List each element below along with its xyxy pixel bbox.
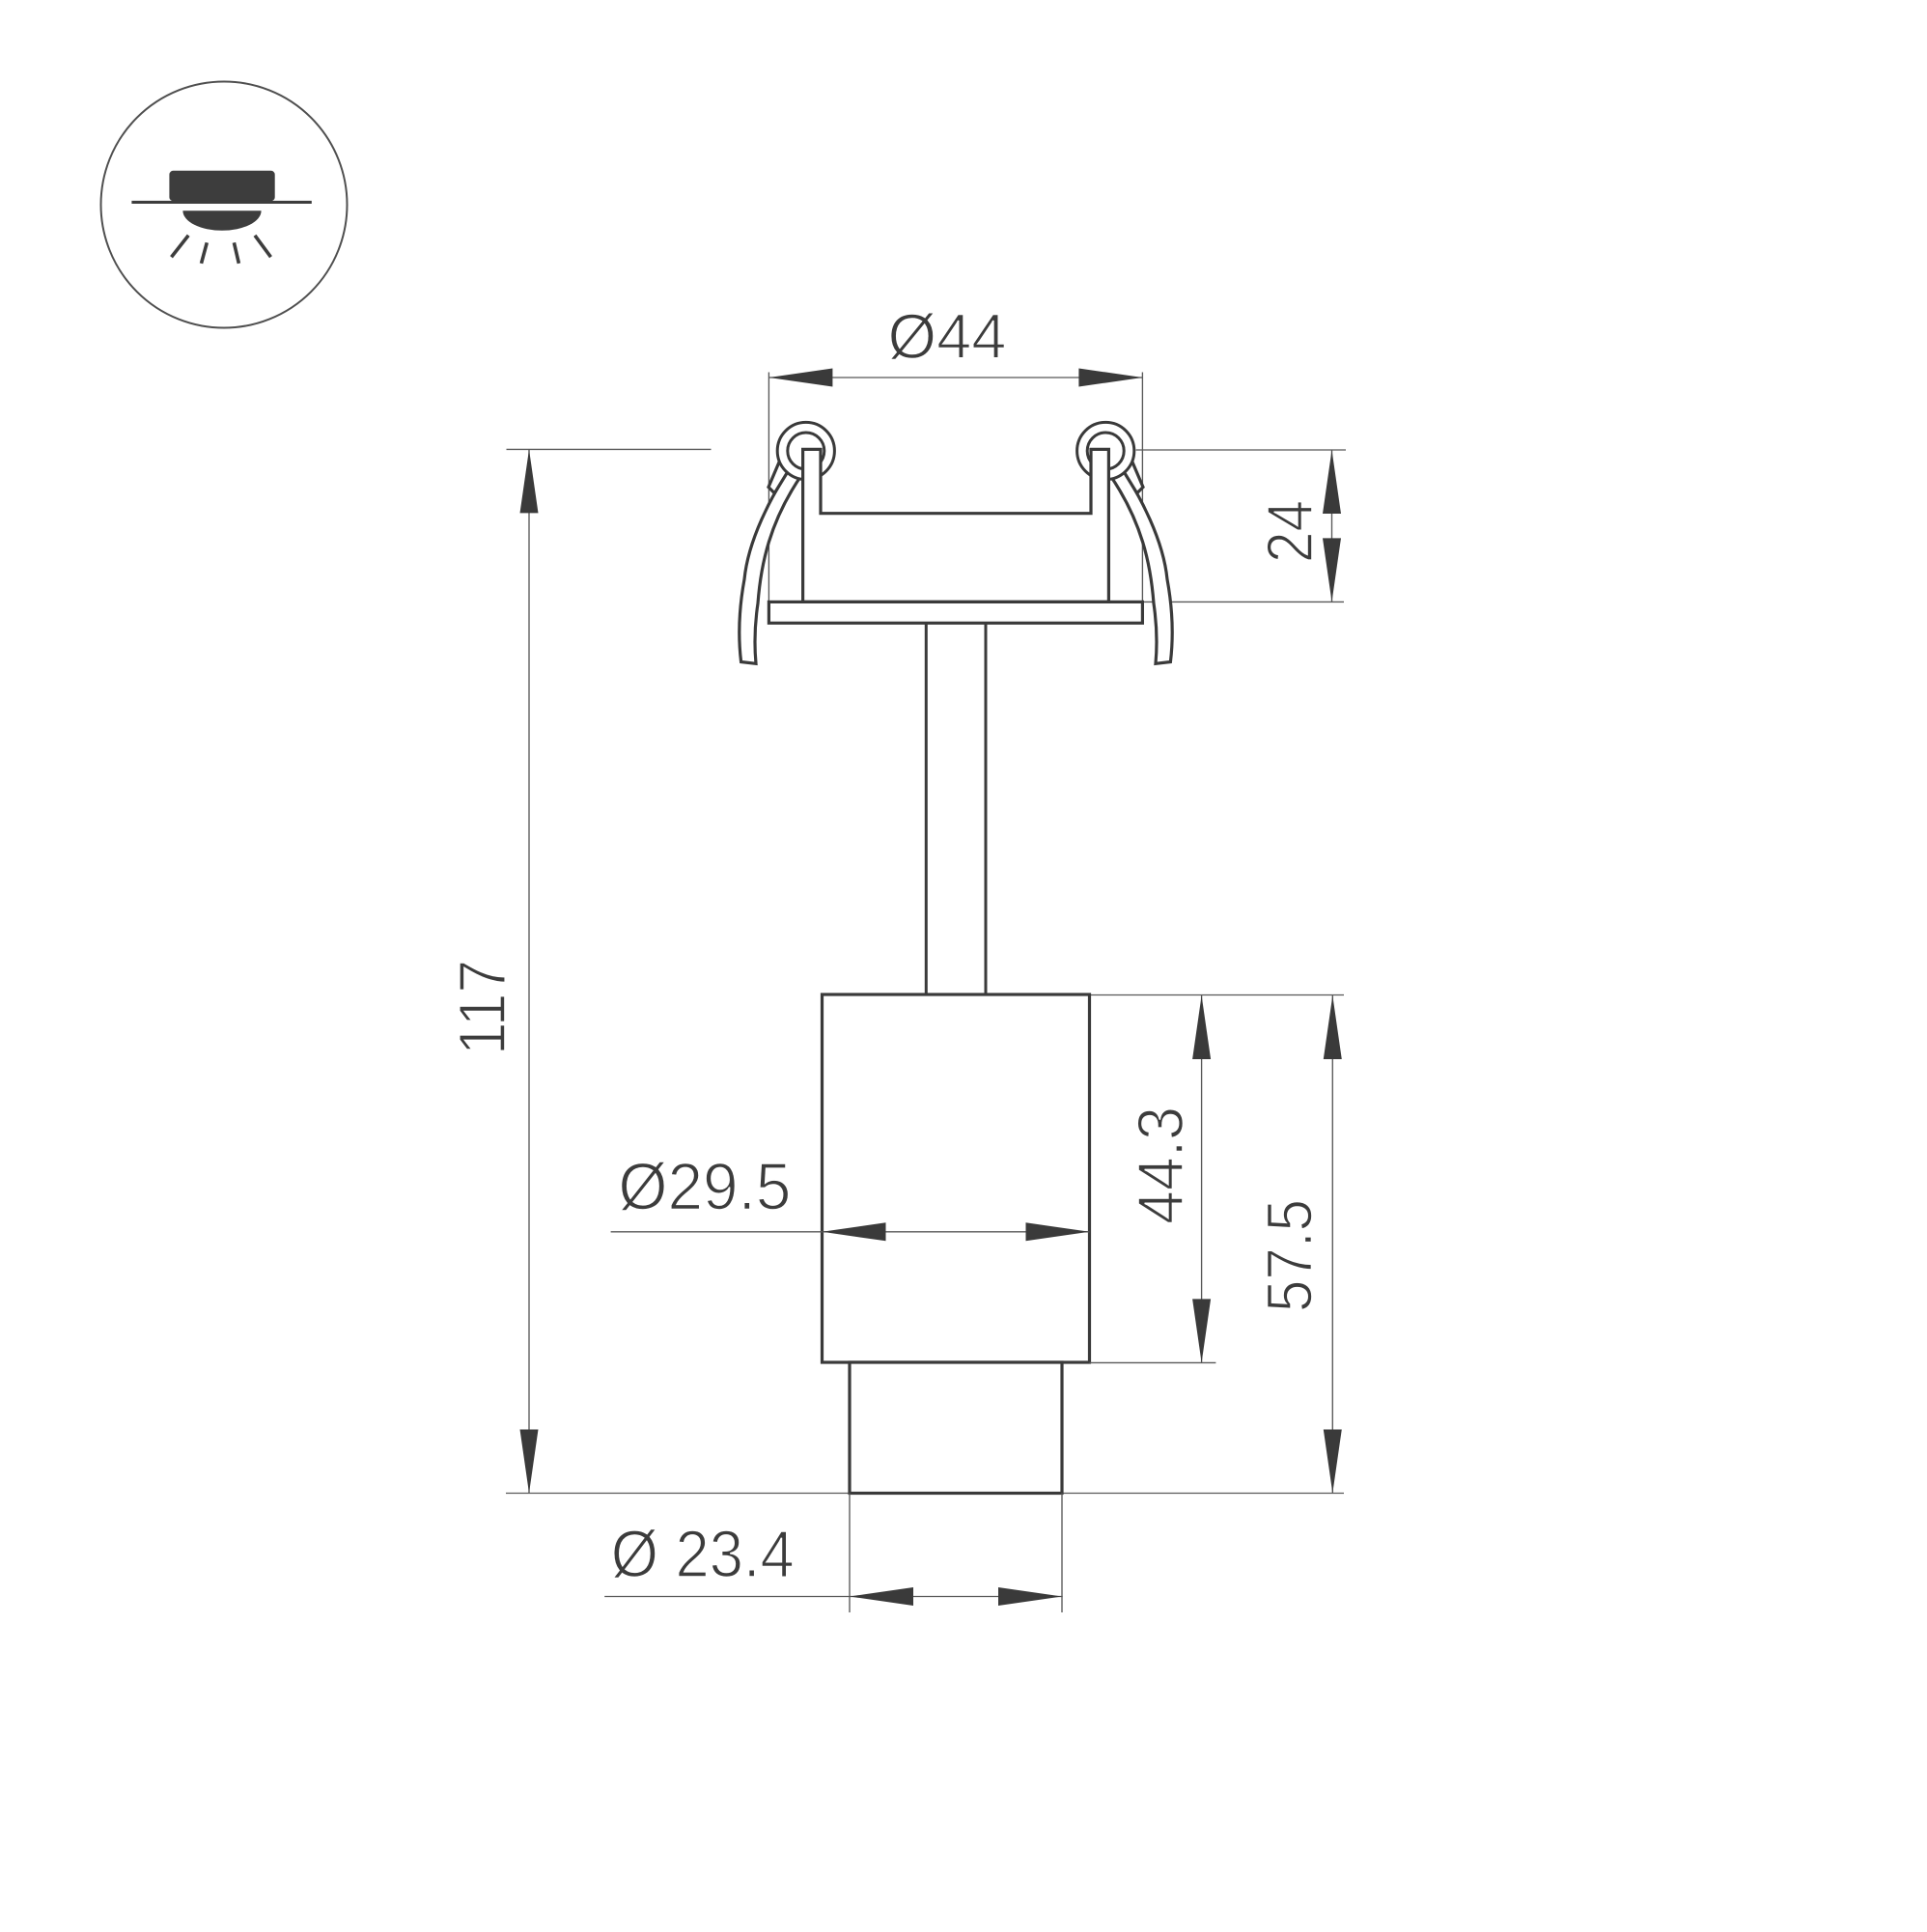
svg-text:24: 24 xyxy=(1254,500,1327,563)
svg-text:57.5: 57.5 xyxy=(1254,1199,1327,1312)
svg-text:Ø44: Ø44 xyxy=(888,300,1007,372)
svg-text:Ø29.5: Ø29.5 xyxy=(618,1150,791,1224)
svg-text:Ø 23.4: Ø 23.4 xyxy=(611,1517,795,1591)
svg-text:117: 117 xyxy=(445,960,519,1055)
svg-text:44.3: 44.3 xyxy=(1125,1106,1197,1224)
